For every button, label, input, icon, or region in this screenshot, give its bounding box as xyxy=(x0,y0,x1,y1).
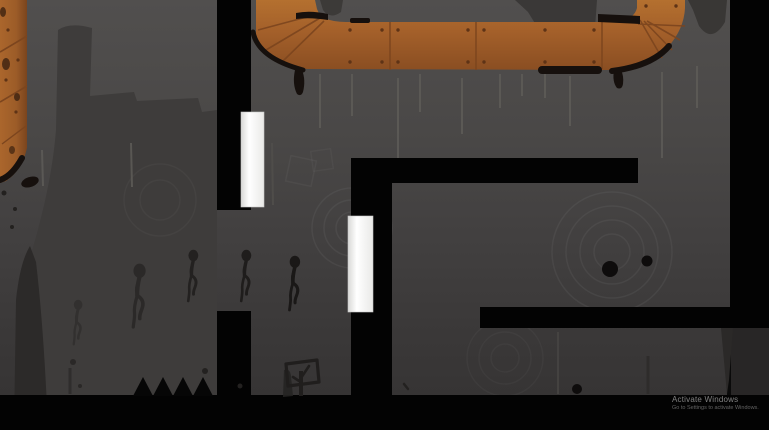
watermark-line1: Activate Windows xyxy=(672,395,769,405)
black-wall-horizontal-mid xyxy=(351,158,638,183)
activate-windows-watermark: Activate Windows Go to Settings to activ… xyxy=(672,395,769,412)
ghost-runner-5 xyxy=(290,256,301,310)
black-wall-right-edge xyxy=(730,0,769,328)
game-scene xyxy=(0,0,769,430)
white-door-1[interactable] xyxy=(241,112,264,207)
pipe-main-run xyxy=(253,0,685,95)
ghost-runner-4 xyxy=(241,250,251,301)
signpost xyxy=(283,360,319,397)
black-column-lower-left xyxy=(217,311,251,396)
pipe-left-segment xyxy=(0,0,40,229)
watermark-line2: Go to Settings to activate Windows. xyxy=(672,405,769,412)
black-floor xyxy=(0,395,769,430)
game-viewport[interactable]: Activate Windows Go to Settings to activ… xyxy=(0,0,769,430)
white-door-2[interactable] xyxy=(348,216,373,312)
black-wall-horizontal-right xyxy=(480,307,730,328)
